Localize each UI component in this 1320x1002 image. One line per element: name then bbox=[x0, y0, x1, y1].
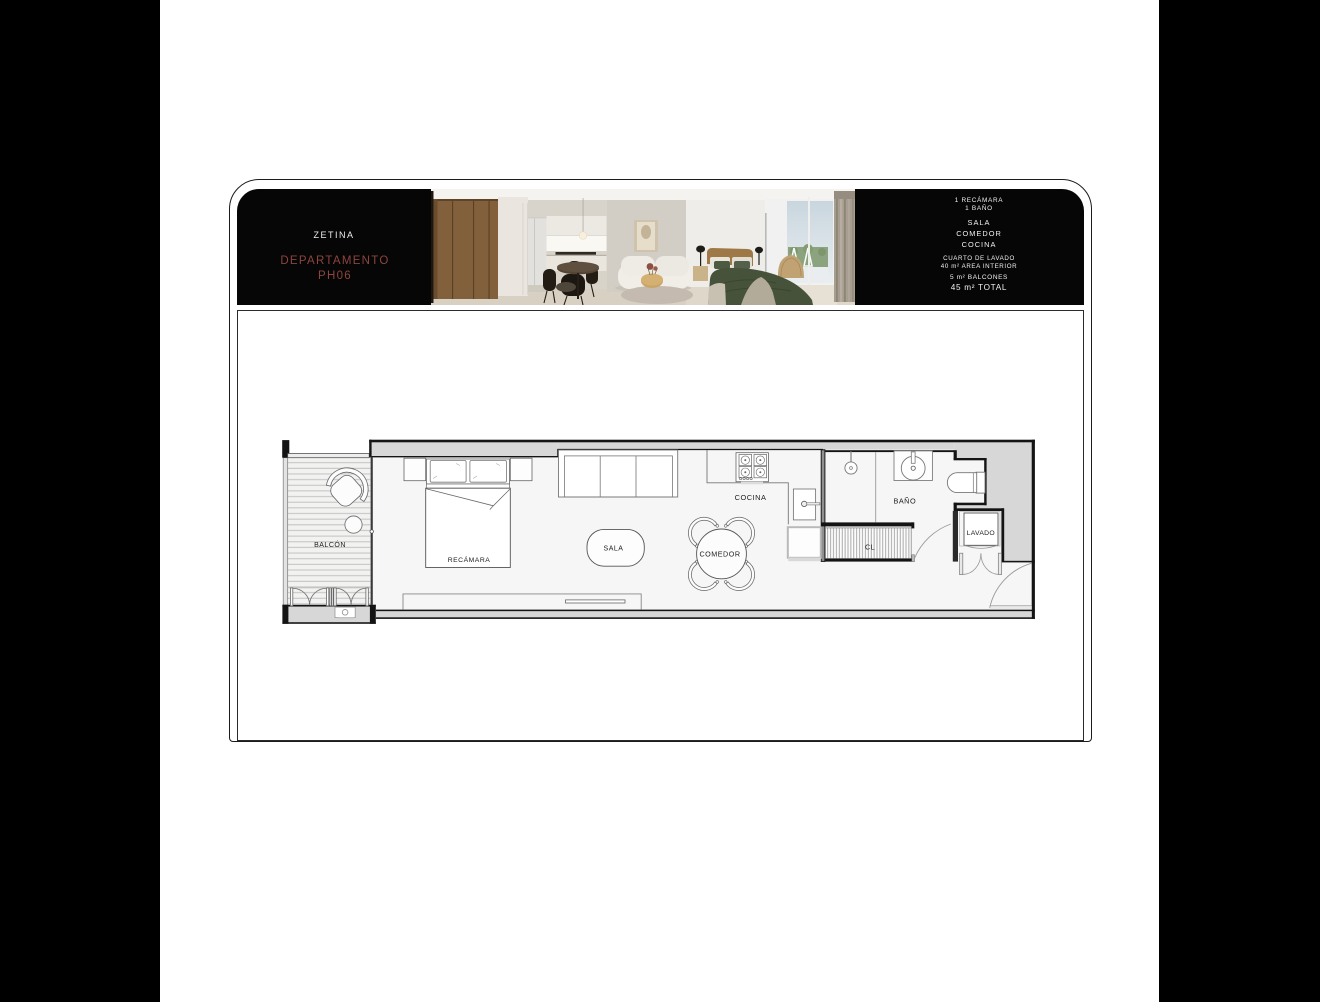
svg-text:SALA: SALA bbox=[604, 545, 624, 552]
svg-text:RECÁMARA: RECÁMARA bbox=[448, 555, 491, 564]
svg-text:LAVADO: LAVADO bbox=[967, 530, 995, 537]
svg-text:COCINA: COCINA bbox=[735, 493, 767, 502]
svg-text:COMEDOR: COMEDOR bbox=[699, 549, 740, 558]
svg-text:BAÑO: BAÑO bbox=[893, 497, 916, 506]
svg-text:CL: CL bbox=[865, 543, 875, 552]
svg-text:BALCÓN: BALCÓN bbox=[314, 540, 346, 549]
